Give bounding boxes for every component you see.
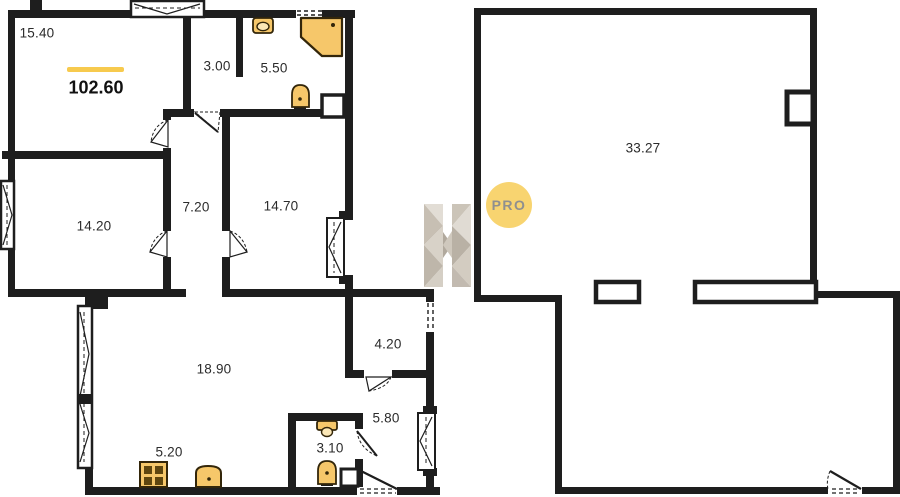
watermark-pro-badge: PRO xyxy=(486,182,532,228)
room-area-label: 4.20 xyxy=(374,337,401,352)
door-icon xyxy=(195,112,220,132)
room-area-label: 5.80 xyxy=(372,411,399,426)
room-area-label: 3.10 xyxy=(316,441,343,456)
room-area-label: 3.00 xyxy=(203,59,230,74)
door-icon xyxy=(151,120,168,147)
watermark-h-logo xyxy=(424,204,471,287)
window-icon xyxy=(131,1,204,17)
room-area-label: 14.70 xyxy=(264,199,299,214)
floor-plan: 15.40 3.00 5.50 7.20 14.20 14.70 18.90 5… xyxy=(0,0,900,497)
sink-icon xyxy=(318,461,336,486)
room-area-label: 18.90 xyxy=(197,362,232,377)
sink-icon xyxy=(292,85,309,111)
window-icon xyxy=(297,11,322,15)
room-area-label: 5.50 xyxy=(260,61,287,76)
room-area-label: 15.40 xyxy=(20,26,55,41)
room-area-label: 14.20 xyxy=(77,219,112,234)
room-area-label: 5.20 xyxy=(155,445,182,460)
shower-icon xyxy=(301,18,342,56)
duct-icon xyxy=(341,469,358,486)
door-icon xyxy=(357,431,377,456)
duct-icon xyxy=(322,95,344,117)
toilet-icon xyxy=(317,421,337,437)
room-area-label: 33.27 xyxy=(626,141,661,156)
window-icon xyxy=(327,211,353,284)
window-icon xyxy=(78,306,92,468)
watermark-pro-text: PRO xyxy=(492,197,527,213)
total-area-label: 102.60 xyxy=(68,78,123,99)
total-area-underline xyxy=(67,67,124,72)
toilet-icon xyxy=(253,18,273,33)
door-icon xyxy=(358,471,397,493)
floor-plan-drawing xyxy=(0,0,900,497)
sink-icon xyxy=(196,466,221,487)
stove-icon xyxy=(140,462,167,487)
door-icon xyxy=(230,231,247,257)
room-area-label: 7.20 xyxy=(182,200,209,215)
window-icon xyxy=(418,406,437,476)
door-icon xyxy=(366,377,391,391)
window-icon xyxy=(428,303,433,331)
window-icon xyxy=(1,181,14,249)
door-icon xyxy=(150,231,167,257)
door-icon xyxy=(827,471,861,493)
